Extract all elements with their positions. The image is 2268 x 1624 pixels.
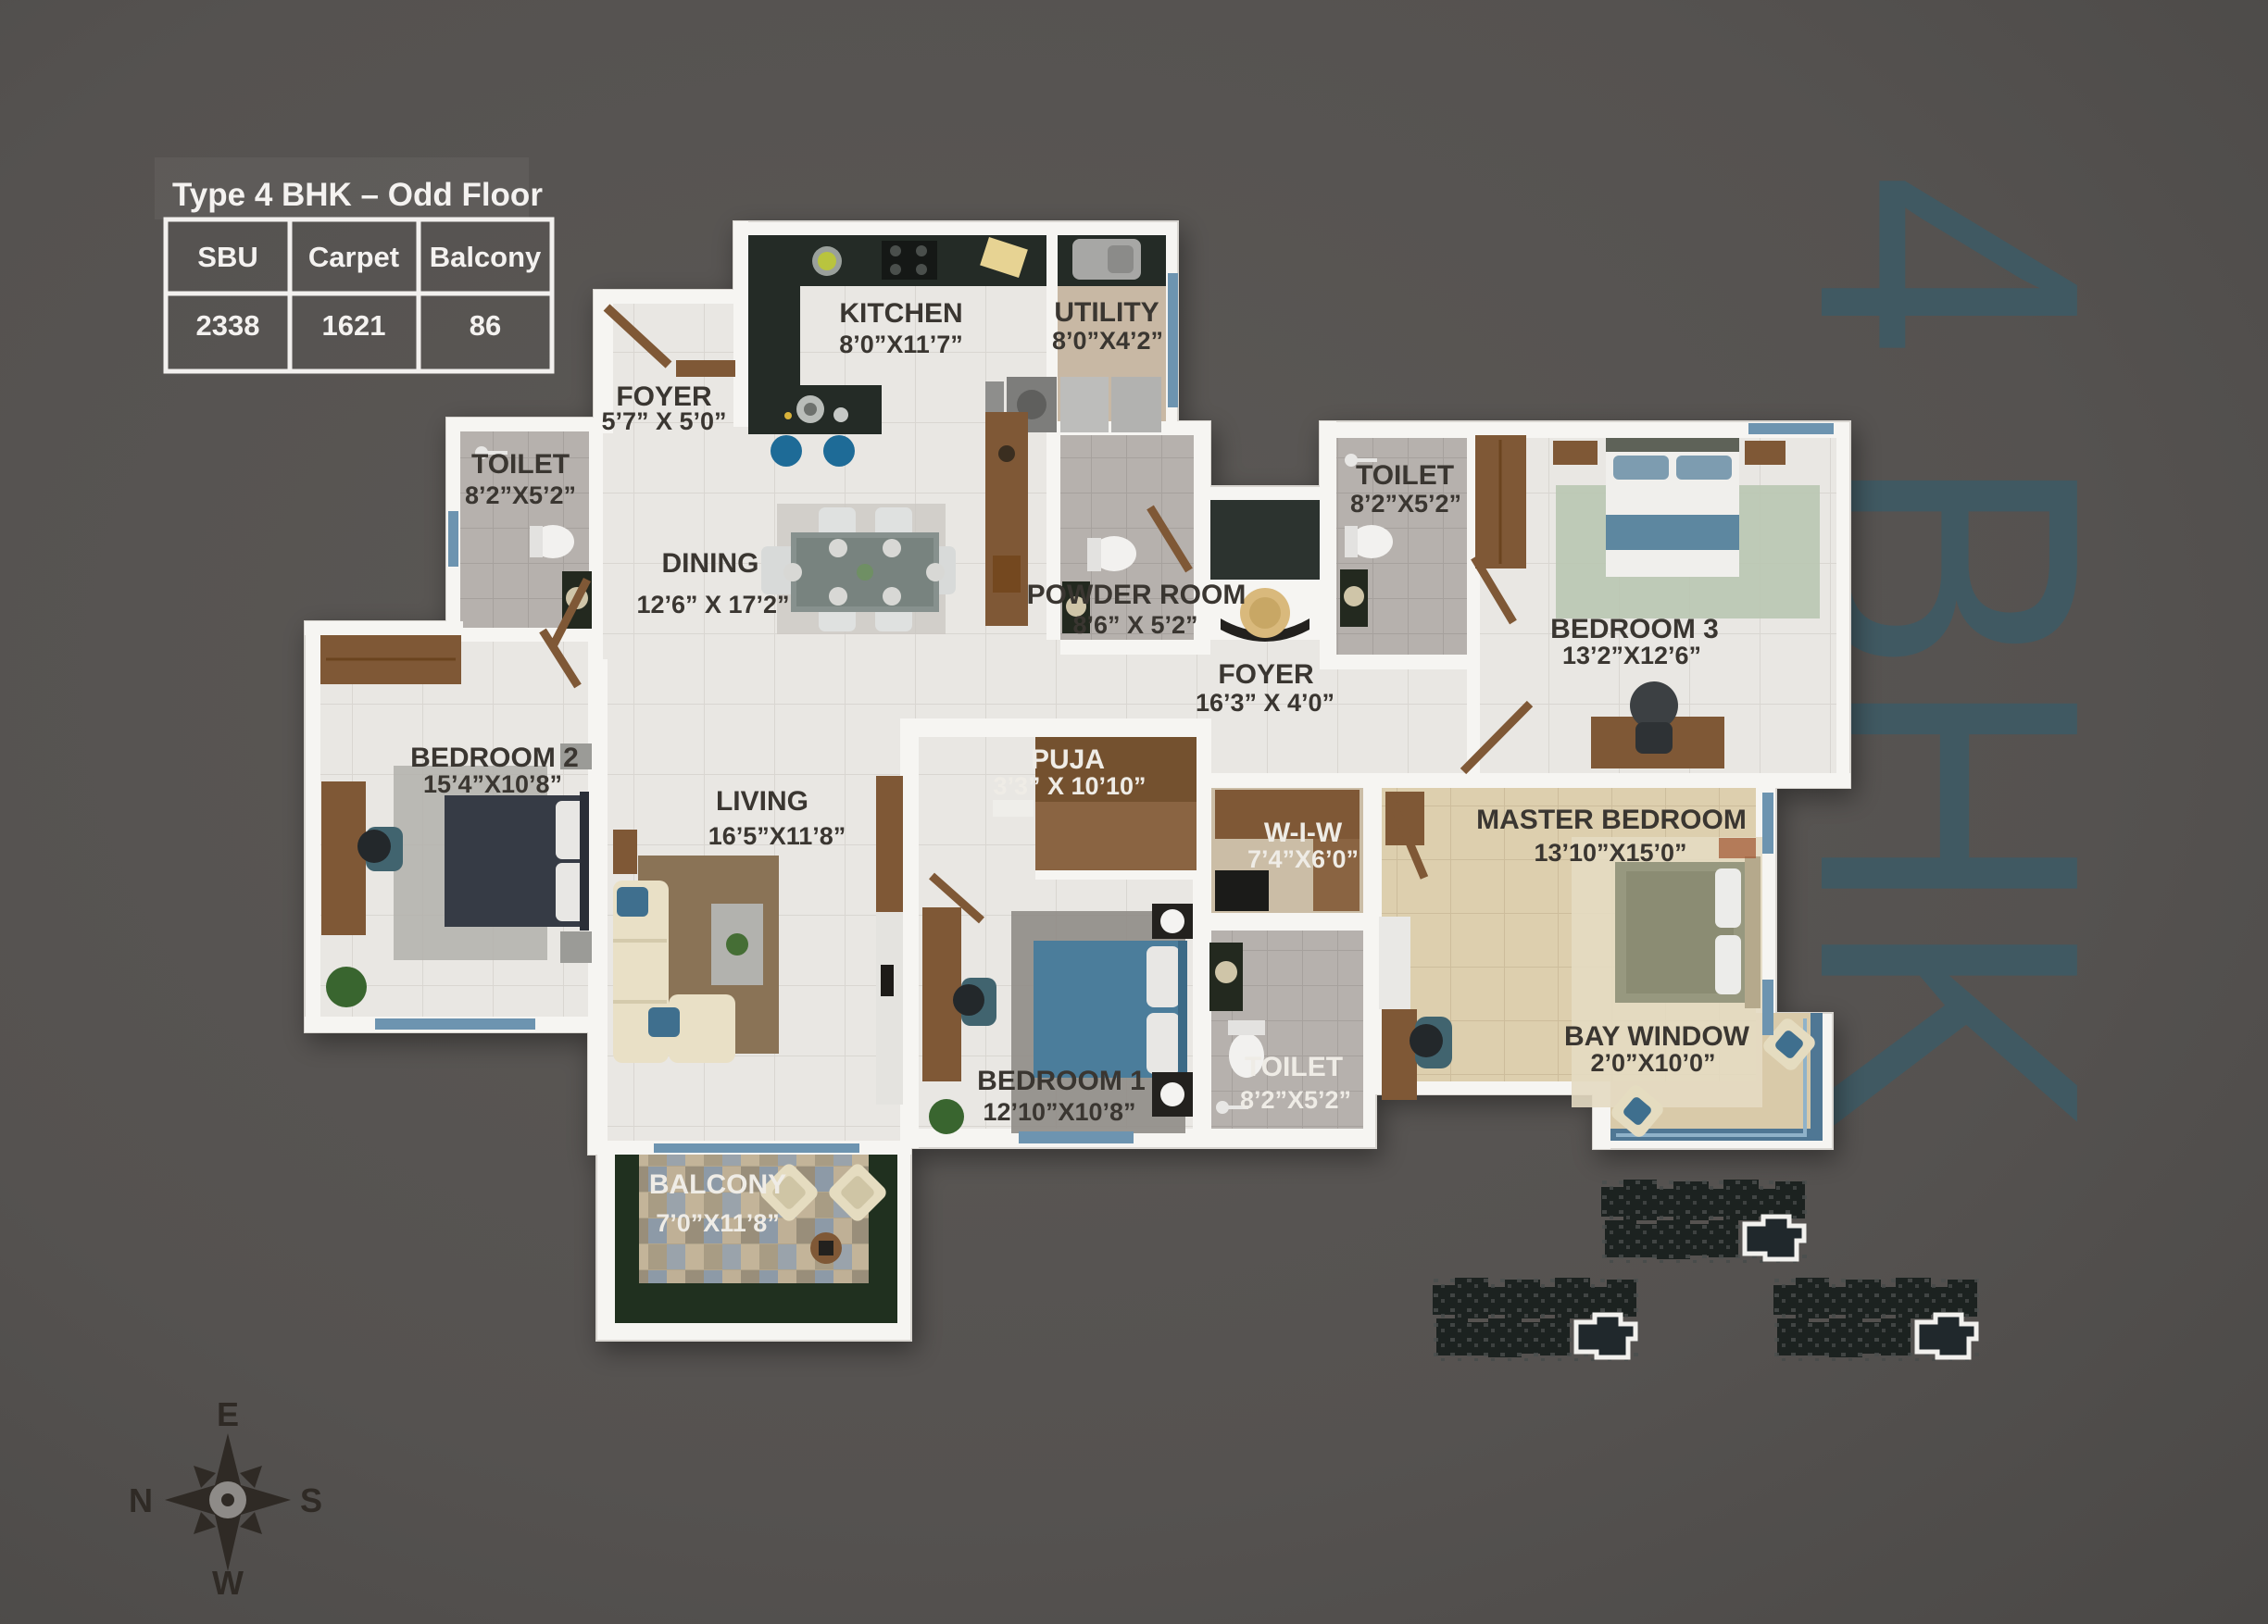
- svg-text:12’6” X 17’2”: 12’6” X 17’2”: [636, 591, 789, 618]
- svg-text:16’3” X 4’0”: 16’3” X 4’0”: [1196, 689, 1334, 717]
- svg-text:MASTER BEDROOM: MASTER BEDROOM: [1476, 805, 1747, 835]
- svg-text:5’7” X 5’0”: 5’7” X 5’0”: [601, 407, 726, 435]
- svg-text:8’0”X4’2”: 8’0”X4’2”: [1052, 327, 1163, 355]
- svg-text:PUJA: PUJA: [1031, 744, 1105, 775]
- svg-text:FOYER: FOYER: [1218, 659, 1314, 690]
- svg-text:TOILET: TOILET: [1245, 1052, 1343, 1082]
- svg-text:BEDROOM 1: BEDROOM 1: [977, 1066, 1146, 1096]
- svg-text:LIVING: LIVING: [716, 786, 808, 817]
- svg-text:7’0”X11’8”: 7’0”X11’8”: [656, 1209, 780, 1237]
- svg-text:8’6” X 5’2”: 8’6” X 5’2”: [1072, 611, 1197, 639]
- svg-text:S: S: [300, 1481, 322, 1519]
- svg-text:W: W: [212, 1564, 244, 1602]
- svg-text:13’2”X12’6”: 13’2”X12’6”: [1562, 642, 1701, 669]
- svg-text:BALCONY: BALCONY: [649, 1169, 786, 1200]
- svg-text:12’10”X10’8”: 12’10”X10’8”: [983, 1098, 1135, 1126]
- svg-text:DINING: DINING: [662, 548, 759, 579]
- svg-text:8’0”X11’7”: 8’0”X11’7”: [839, 331, 963, 358]
- svg-text:E: E: [217, 1395, 239, 1433]
- svg-text:86: 86: [470, 309, 501, 342]
- svg-text:TOILET: TOILET: [1356, 460, 1454, 491]
- svg-text:UTILITY: UTILITY: [1054, 297, 1159, 328]
- svg-text:15’4”X10’8”: 15’4”X10’8”: [423, 770, 562, 798]
- svg-text:BAY WINDOW: BAY WINDOW: [1564, 1021, 1750, 1052]
- svg-text:16’5”X11’8”: 16’5”X11’8”: [708, 822, 846, 850]
- svg-text:1621: 1621: [322, 309, 386, 342]
- svg-text:3’3” X 10’10”: 3’3” X 10’10”: [993, 772, 1146, 800]
- svg-text:8’2”X5’2”: 8’2”X5’2”: [465, 481, 576, 509]
- svg-text:Carpet: Carpet: [308, 241, 399, 273]
- svg-text:KITCHEN: KITCHEN: [839, 298, 962, 329]
- svg-text:SBU: SBU: [197, 241, 257, 273]
- svg-text:2’0”X10’0”: 2’0”X10’0”: [1590, 1049, 1715, 1077]
- svg-text:8’2”X5’2”: 8’2”X5’2”: [1240, 1086, 1351, 1114]
- svg-text:8’2”X5’2”: 8’2”X5’2”: [1350, 490, 1461, 518]
- svg-text:BEDROOM 3: BEDROOM 3: [1550, 614, 1719, 644]
- svg-text:Balcony: Balcony: [430, 241, 542, 273]
- svg-text:Type 4 BHK – Odd Floor: Type 4 BHK – Odd Floor: [172, 177, 543, 213]
- svg-text:BEDROOM 2: BEDROOM 2: [410, 743, 579, 773]
- svg-text:W-I-W: W-I-W: [1264, 818, 1343, 848]
- svg-text:2338: 2338: [196, 309, 260, 342]
- svg-text:13’10”X15’0”: 13’10”X15’0”: [1534, 839, 1686, 867]
- svg-text:TOILET: TOILET: [471, 449, 570, 480]
- svg-text:N: N: [129, 1481, 153, 1519]
- svg-text:7’4”X6’0”: 7’4”X6’0”: [1247, 845, 1359, 873]
- svg-text:POWDER ROOM: POWDER ROOM: [1027, 580, 1247, 610]
